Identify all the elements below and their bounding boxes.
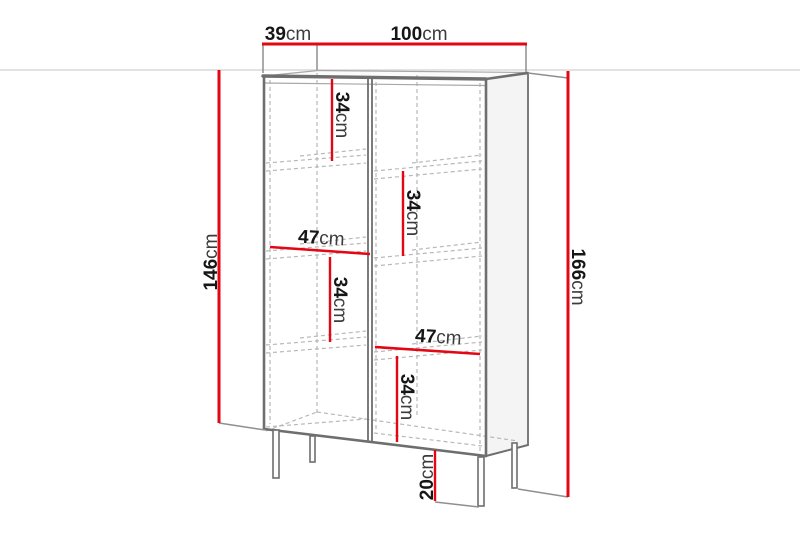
dim-label-body-height: 146cm xyxy=(201,233,222,290)
ext-leg-bottom xyxy=(435,502,479,507)
dim-label-cell-middle-left: 34cm xyxy=(329,277,350,323)
ext-right-top xyxy=(528,73,568,78)
leg-front-left xyxy=(273,430,279,478)
dim-label-depth: 39cm xyxy=(265,24,311,45)
dim-label-cell-top-left: 34cm xyxy=(331,92,352,138)
leg-front-right xyxy=(478,457,484,506)
dim-label-cell-lower-right: 34cm xyxy=(396,374,417,420)
dim-label-total-height: 166cm xyxy=(567,248,588,305)
dim-label-inner-width-left: 47cm xyxy=(298,227,346,251)
dim-label-width: 100cm xyxy=(390,24,447,45)
dim-label-cell-upper-right: 34cm xyxy=(402,190,423,236)
cabinet-side-face xyxy=(486,73,528,456)
dim-label-leg-height: 20cm xyxy=(417,454,438,500)
ext-bottom-left xyxy=(219,423,265,430)
furniture-dimension-diagram: 39cm 100cm 146cm 166cm 34cm 34cm 34cm 34… xyxy=(0,0,800,533)
leg-back-right xyxy=(512,443,517,488)
diagram-canvas: 39cm 100cm 146cm 166cm 34cm 34cm 34cm 34… xyxy=(0,0,800,533)
dim-label-inner-width-right: 47cm xyxy=(415,326,463,350)
leg-back-left xyxy=(310,436,315,462)
ext-right-bottom xyxy=(518,489,568,497)
